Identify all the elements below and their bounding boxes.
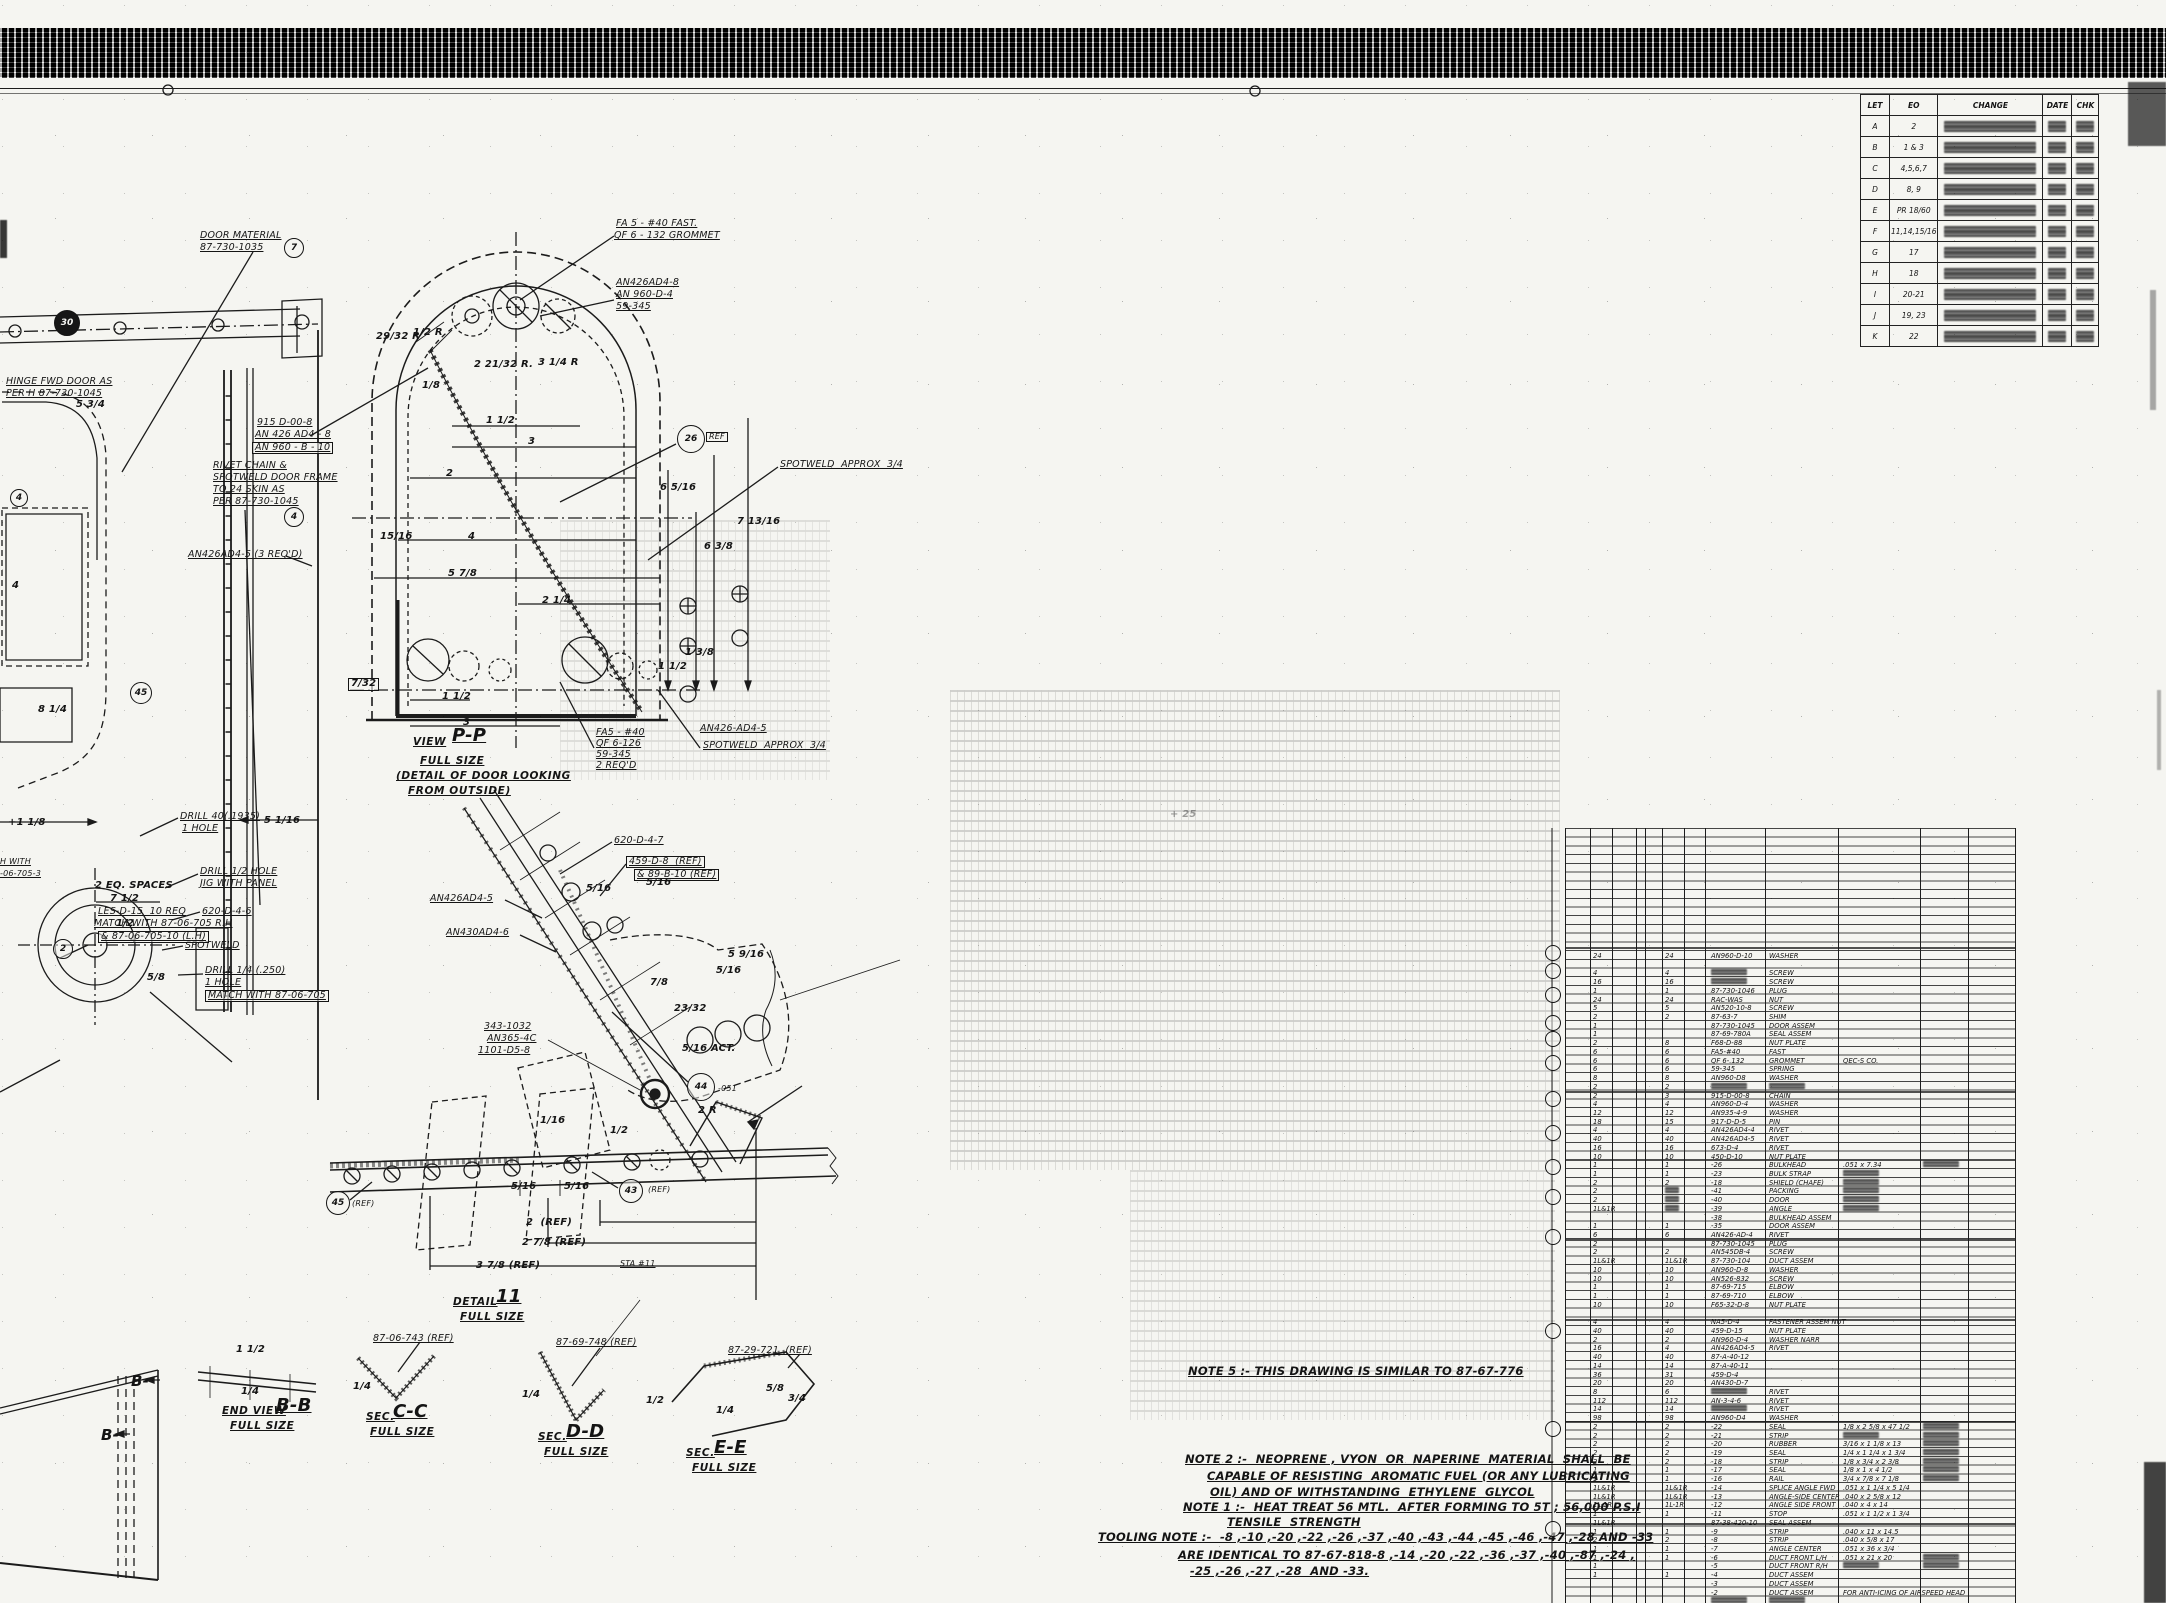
balloon-callout: 43: [619, 1179, 643, 1203]
balloon-callout: [1545, 1055, 1561, 1071]
balloon-callout: [1545, 1031, 1561, 1047]
balloon-layer: 2674245444434530: [0, 0, 2166, 1603]
balloon-callout: [1545, 1189, 1561, 1205]
balloon-callout: 45: [326, 1191, 350, 1215]
balloon-callout: 30: [54, 310, 80, 336]
balloon-callout: [1545, 1159, 1561, 1175]
balloon-callout: 26: [677, 425, 705, 453]
balloon-callout: [1545, 945, 1561, 961]
balloon-callout: [1545, 1125, 1561, 1141]
balloon-callout: [1545, 987, 1561, 1003]
balloon-callout: [1545, 1015, 1561, 1031]
balloon-callout: [1545, 1421, 1561, 1437]
balloon-callout: 45: [130, 682, 152, 704]
balloon-callout: 7: [284, 238, 304, 258]
balloon-callout: 44: [687, 1073, 715, 1101]
balloon-callout: 4: [284, 507, 304, 527]
balloon-callout: 4: [10, 489, 28, 507]
balloon-callout: [1545, 1091, 1561, 1107]
balloon-callout: [1545, 963, 1561, 979]
drawing-sheet: 2424AN960-D-10WASHER44SCREW1616SCREW1187…: [0, 0, 2166, 1603]
balloon-callout: [1545, 1229, 1561, 1245]
balloon-callout: [1545, 1521, 1561, 1537]
balloon-callout: 2: [53, 939, 73, 959]
balloon-callout: [1545, 1323, 1561, 1339]
